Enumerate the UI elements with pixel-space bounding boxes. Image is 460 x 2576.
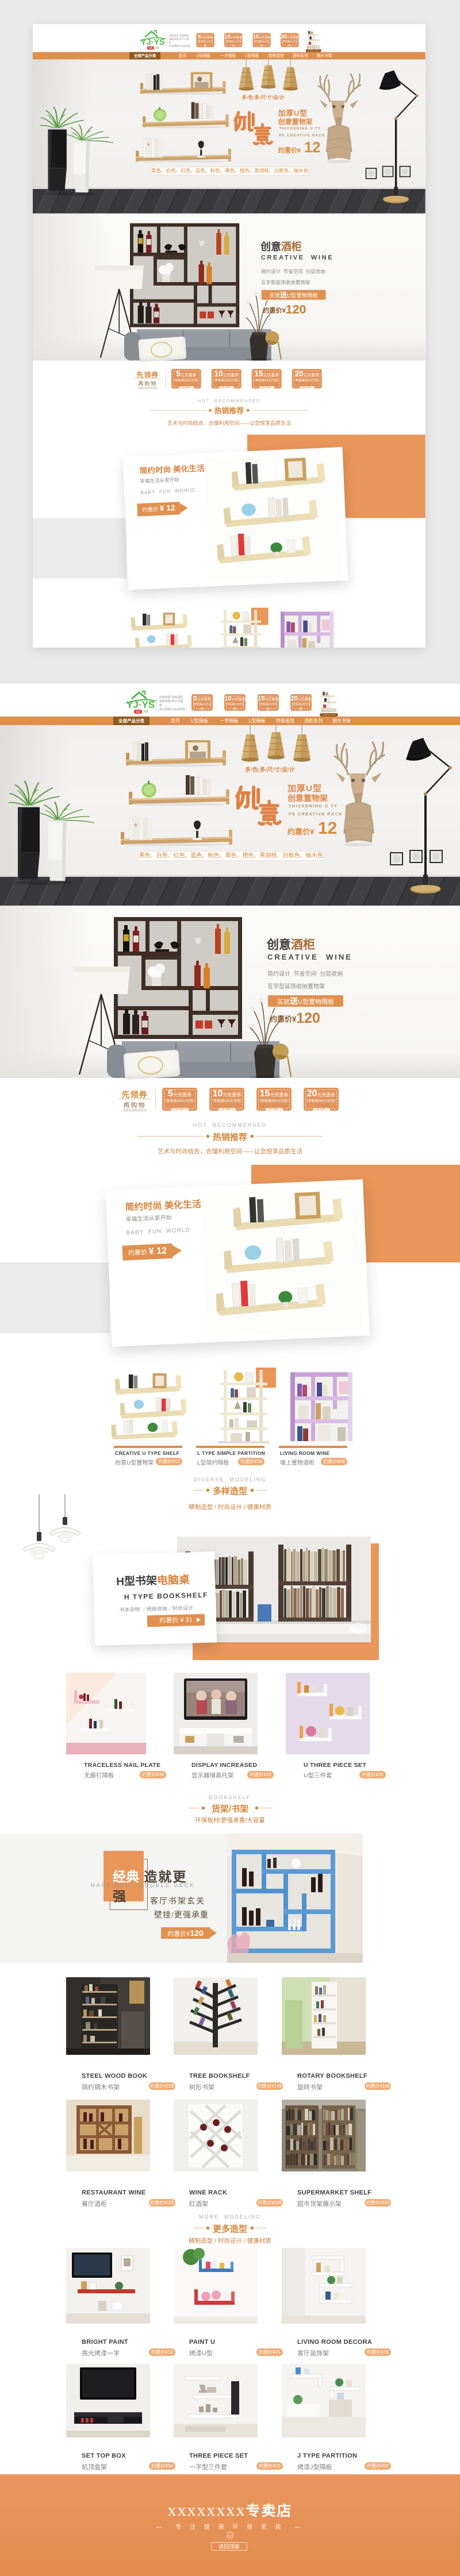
svg-text:YJ·YS: YJ·YS <box>126 699 155 710</box>
svg-text:YJ·YS: YJ·YS <box>141 38 165 47</box>
svg-text:B: B <box>148 144 150 147</box>
svg-text:B: B <box>135 824 137 827</box>
